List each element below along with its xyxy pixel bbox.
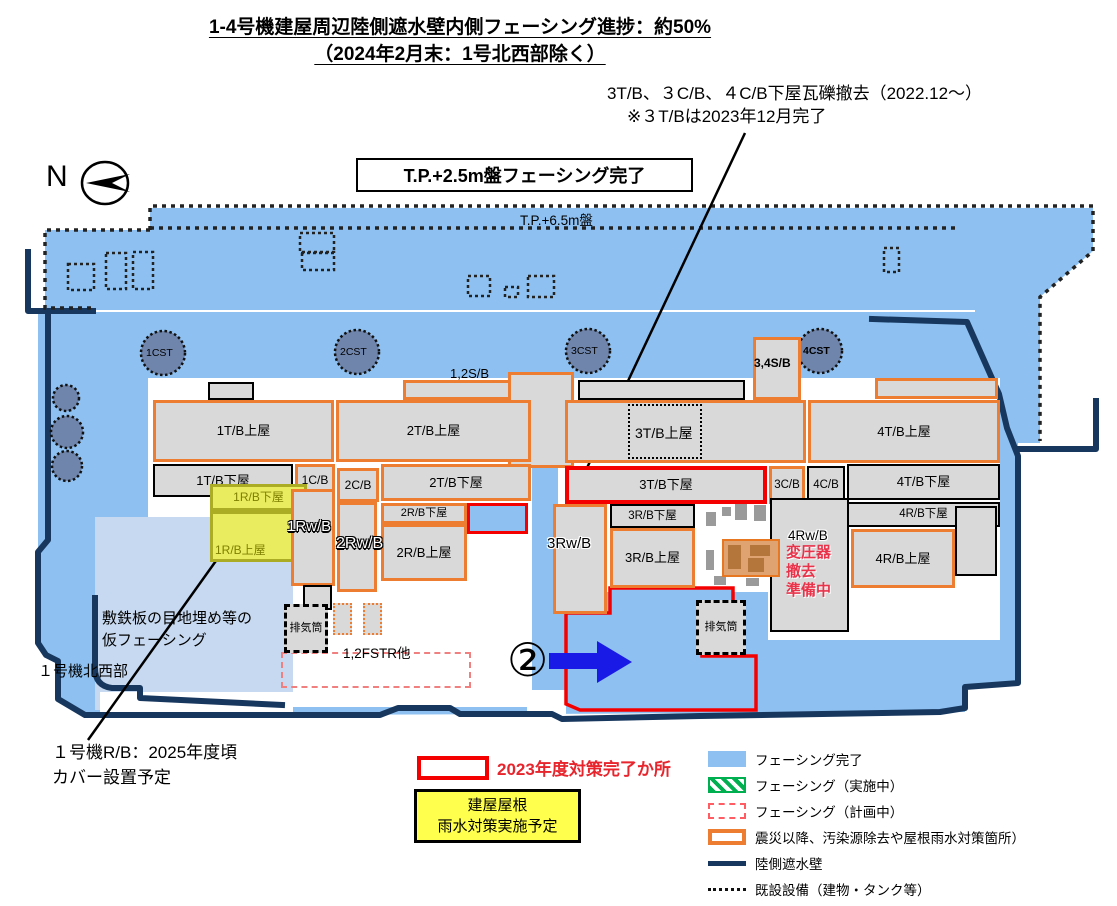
step2-marker: ② bbox=[507, 633, 548, 687]
rubble-icon bbox=[746, 578, 759, 586]
building-3rb-lower: 3R/B下屋 bbox=[610, 504, 695, 528]
legend-roof-line2: 雨水対策実施予定 bbox=[437, 816, 557, 837]
completed-2023-spot-u2 bbox=[467, 503, 528, 534]
legend-item-existing: 既設設備（建物・タンク等） bbox=[708, 880, 1025, 898]
tank-4cst-label: 4CST bbox=[803, 345, 830, 357]
stack-12-label: 排気筒 bbox=[290, 623, 323, 635]
rubble-icon bbox=[735, 504, 747, 520]
building-3tb-lower-label: 3T/B下屋 bbox=[639, 478, 692, 492]
navy-line-swatch-icon bbox=[708, 861, 746, 866]
transformer-part-icon bbox=[728, 545, 741, 569]
legend-item-countermeasure: 震災以降、汚染源除去や屋根雨水対策箇所） bbox=[708, 828, 1025, 846]
dotted-line-swatch-icon bbox=[708, 888, 746, 891]
building-3tb-upper-label: 3T/B上屋 bbox=[635, 423, 693, 443]
debris-annotation-line1: 3T/B、３C/B、４C/B下屋瓦礫撤去（2022.12～） bbox=[607, 82, 982, 105]
legend-list: フェーシング完了 フェーシング（実施中） フェーシング（計画中） 震災以降、汚染… bbox=[708, 750, 1025, 906]
rubble-icon bbox=[706, 512, 716, 526]
building-2rb-upper: 2R/B上屋 bbox=[381, 524, 467, 581]
stack-12: 排気筒 bbox=[284, 604, 328, 653]
building-1rwb-label: 1Rw/B bbox=[287, 518, 331, 535]
building-4rwb-label: 4Rw/B bbox=[788, 528, 828, 543]
green-hatch-swatch-icon bbox=[708, 777, 746, 793]
legend-completed-2023-label: 2023年度対策完了か所 bbox=[497, 755, 671, 780]
rubble-icon bbox=[722, 507, 731, 516]
legend-item-wall: 陸側遮水壁 bbox=[708, 854, 1025, 872]
building-1tb-upper: 1T/B上屋 bbox=[153, 400, 334, 462]
legend-label: 陸側遮水壁 bbox=[755, 853, 823, 873]
building-4rb-upper-label: 4R/B上屋 bbox=[876, 552, 931, 566]
north-compass-icon bbox=[82, 162, 130, 204]
building-3tb-lower: 3T/B下屋 bbox=[565, 466, 767, 504]
tank-2cst-label: 2CST bbox=[340, 346, 367, 358]
page-title: 1-4号機建屋周辺陸側遮水壁内側フェーシング進捗：約50% （2024年2月末：… bbox=[150, 12, 770, 66]
transformer-part-icon bbox=[750, 545, 770, 556]
building-2tb-lower: 2T/B下屋 bbox=[381, 464, 531, 501]
rubble-icon bbox=[714, 576, 726, 585]
building-4rb-upper: 4R/B上屋 bbox=[851, 529, 955, 588]
building-4cb-label: 4C/B bbox=[813, 479, 839, 491]
building-3rwb bbox=[553, 504, 607, 614]
building-34sb-label: 3,4S/B bbox=[754, 356, 791, 370]
building-1rb-upper-label: 1R/B上屋 bbox=[215, 544, 266, 557]
building-annex-u3 bbox=[578, 380, 745, 400]
building-3rb-lower-label: 3R/B下屋 bbox=[628, 510, 677, 522]
rb-cover-line1: １号機R/B：2025年度頃 bbox=[52, 740, 237, 765]
legend-label: 震災以降、汚染源除去や屋根雨水対策箇所） bbox=[755, 827, 1025, 847]
blue-fill-swatch-icon bbox=[708, 751, 746, 767]
unit1-nw-label: １号機北西部 bbox=[38, 660, 128, 681]
building-12fstr-label: 1,2FSTR他 bbox=[343, 642, 411, 662]
orange-outline-swatch-icon bbox=[708, 829, 746, 845]
legend-red-box-icon bbox=[417, 756, 489, 780]
tp25-banner: T.P.+2.5m盤フェーシング完了 bbox=[356, 158, 693, 192]
building-3cb-label: 3C/B bbox=[774, 479, 800, 491]
title-line1: 1-4号機建屋周辺陸側遮水壁内側フェーシング進捗：約50% bbox=[150, 12, 770, 39]
temp-facing-note: 敷鉄板の目地埋め等の 仮フェーシング bbox=[102, 608, 252, 652]
building-1rb-lower-label: 1R/B下屋 bbox=[233, 491, 284, 504]
building-3rb-upper: 3R/B上屋 bbox=[610, 528, 695, 588]
rb-cover-line2: カバー設置予定 bbox=[52, 765, 237, 790]
building-3rb-upper-label: 3R/B上屋 bbox=[625, 551, 680, 565]
transformer-line1: 変圧器 bbox=[786, 543, 831, 562]
tank-1cst-label: 1CST bbox=[146, 347, 173, 359]
building-annex-u1 bbox=[208, 382, 254, 400]
legend-item-facing-inprogress: フェーシング（実施中） bbox=[708, 776, 1025, 794]
building-4tb-lower-label: 4T/B下屋 bbox=[897, 475, 950, 489]
building-annex-u4 bbox=[875, 378, 998, 399]
building-annex-u2 bbox=[403, 380, 513, 400]
rb-cover-note: １号機R/B：2025年度頃 カバー設置予定 bbox=[52, 740, 237, 790]
building-4tb-upper: 4T/B上屋 bbox=[808, 400, 1000, 463]
debris-annotation-line2: ※３T/Bは2023年12月完了 bbox=[607, 105, 982, 128]
building-dotted-2 bbox=[363, 603, 382, 635]
building-2tb-lower-label: 2T/B下屋 bbox=[429, 476, 482, 490]
temp-facing-line2: 仮フェーシング bbox=[102, 630, 252, 652]
building-2rwb-label: 2Rw/B bbox=[336, 535, 383, 553]
building-small-u4 bbox=[955, 506, 997, 576]
rubble-icon bbox=[754, 505, 766, 521]
building-2rb-upper-label: 2R/B上屋 bbox=[397, 546, 452, 560]
stack-34: 排気筒 bbox=[696, 600, 746, 655]
legend-roof-rain-box: 建屋屋根 雨水対策実施予定 bbox=[414, 789, 581, 843]
legend-label: フェーシング（計画中） bbox=[755, 801, 903, 821]
building-2cb-label: 2C/B bbox=[345, 479, 372, 492]
legend-label: 既設設備（建物・タンク等） bbox=[755, 879, 931, 899]
red-dashed-swatch-icon bbox=[708, 803, 746, 819]
building-2cb: 2C/B bbox=[337, 468, 379, 502]
building-3rwb-label: 3Rw/B bbox=[547, 535, 591, 552]
transformer-status-label: 変圧器 撤去 準備中 bbox=[786, 543, 831, 600]
legend-item-facing-complete: フェーシング完了 bbox=[708, 750, 1025, 768]
transformer-part-icon bbox=[748, 558, 764, 572]
building-2tb-upper: 2T/B上屋 bbox=[336, 400, 531, 462]
building-2rb-lower: 2R/B下屋 bbox=[381, 503, 467, 524]
north-label: N bbox=[46, 160, 68, 194]
building-4tb-upper-label: 4T/B上屋 bbox=[877, 425, 930, 439]
tank-3cst-label: 3CST bbox=[571, 345, 598, 357]
tp65-label: T.P.+6.5m盤 bbox=[520, 209, 593, 229]
stack-34-label: 排気筒 bbox=[705, 622, 738, 634]
building-4rb-lower-label: 4R/B下屋 bbox=[899, 508, 948, 520]
unfaced-strip-mid bbox=[527, 690, 566, 714]
building-1rwb bbox=[291, 489, 335, 586]
building-12sb-label: 1,2S/B bbox=[450, 366, 489, 381]
legend-item-facing-planned: フェーシング（計画中） bbox=[708, 802, 1025, 820]
building-4tb-lower: 4T/B下屋 bbox=[847, 464, 1000, 500]
building-2tb-upper-label: 2T/B上屋 bbox=[407, 424, 460, 438]
building-dotted-1 bbox=[333, 603, 352, 635]
legend-roof-line1: 建屋屋根 bbox=[467, 795, 527, 816]
legend-label: フェーシング完了 bbox=[755, 749, 863, 769]
debris-annotation: 3T/B、３C/B、４C/B下屋瓦礫撤去（2022.12～） ※３T/Bは202… bbox=[607, 82, 982, 128]
transformer-line3: 準備中 bbox=[786, 581, 831, 600]
building-2rb-lower-label: 2R/B下屋 bbox=[401, 508, 447, 520]
legend-label: フェーシング（実施中） bbox=[755, 775, 903, 795]
rubble-icon bbox=[706, 550, 714, 570]
transformer-line2: 撤去 bbox=[786, 562, 831, 581]
title-line2: （2024年2月末：1号北西部除く） bbox=[150, 39, 770, 66]
building-1tb-upper-label: 1T/B上屋 bbox=[217, 424, 270, 438]
temp-facing-line1: 敷鉄板の目地埋め等の bbox=[102, 608, 252, 630]
